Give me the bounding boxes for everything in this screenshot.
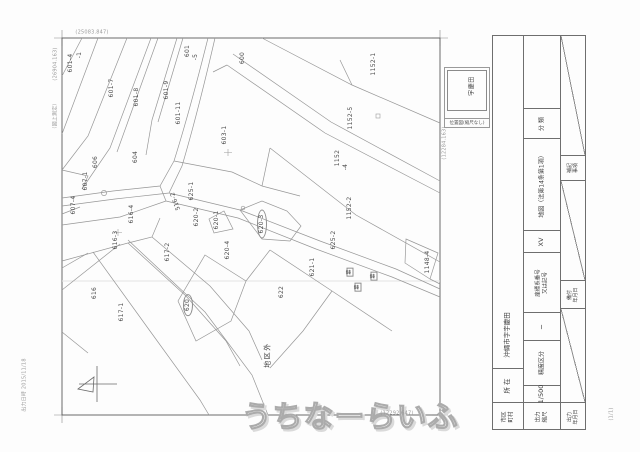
parcel-label: 601-4: [68, 54, 74, 73]
table-cell: 地図（法第14条第1項）: [524, 139, 560, 231]
parcel-label: 606: [93, 156, 99, 168]
parcel-label: 601-8: [134, 88, 140, 107]
table-cell-text: 所 在: [504, 378, 512, 393]
table-cell-text: 補記事項: [567, 163, 579, 173]
table-cell: [561, 36, 585, 156]
table-cell: ─: [524, 313, 560, 341]
parcel-label: 1152-5: [348, 106, 354, 129]
table-cell-text: ─: [538, 324, 546, 328]
table-cell: 出力縮尺: [524, 403, 560, 431]
coordinate-label: (12284.163): [443, 126, 448, 159]
table-cell: 座標系番号又は記号: [524, 253, 560, 313]
survey-marks: [114, 114, 380, 236]
table-cell: 市区町村: [493, 403, 523, 431]
table-cell-text: 分 類: [538, 117, 545, 131]
parcel-label: 625-2: [331, 231, 337, 250]
parcel-label: 620-2: [194, 208, 200, 227]
inset-location-box: 宇慶田 位置図(縮尺なし): [444, 67, 490, 128]
table-cell-text: 出力年月日: [567, 409, 579, 424]
table-cell-text: 備付年月日: [567, 287, 579, 302]
table-cell: XV: [524, 231, 560, 253]
parcel-label: 616-4: [129, 205, 135, 224]
title-block-column: 補記事項備付年月日出力年月日: [560, 35, 586, 430]
parcel-label: -5: [193, 54, 199, 61]
parcel-label: 607-1: [83, 172, 89, 191]
inset-area-name: 宇慶田: [467, 76, 476, 96]
parcel-label: 601-7: [109, 79, 115, 98]
title-block-column: 分 類地図（法第14条第1項）XV座標系番号又は記号─精度区分1/500出力縮尺: [523, 35, 561, 430]
parcel-label: -4: [343, 164, 349, 171]
table-cell: 出力年月日: [561, 403, 585, 431]
parcel-label: 1152: [335, 150, 341, 166]
title-block-column: 沖縄市字宇慶田所 在市区町村: [492, 35, 524, 430]
north-arrow: [78, 366, 117, 402]
table-cell-text: XV: [538, 237, 546, 246]
table-cell-text: 精度区分: [538, 351, 545, 375]
coordinate-label: (26904.163): [54, 47, 59, 80]
table-cell: [493, 36, 523, 301]
parcel-label: 601-11: [176, 101, 182, 124]
table-cell-text: 沖縄市字宇慶田: [504, 312, 512, 358]
table-cell: 1/500: [524, 386, 560, 403]
parcel-label: 603-1: [222, 126, 228, 145]
parcel-label: 617-1: [119, 303, 125, 322]
parcel-label: 601-9: [164, 81, 170, 100]
parcel-label: 620-1: [214, 211, 220, 230]
coordinate-label: (12292.647): [380, 412, 413, 417]
parcel-label: 墓: [371, 271, 378, 280]
watermark: うちなーらいふ うちなーらいふ: [242, 400, 461, 437]
parcel-label: 600: [240, 52, 246, 64]
table-cell: 補記事項: [561, 156, 585, 181]
scanned-cadastral-map-page: うちなーらいふ うちなーらいふ 601-4-1601-7601-8601-960…: [0, 0, 640, 452]
parcel-label: 1148-4: [425, 250, 431, 273]
table-cell: 備付年月日: [561, 281, 585, 309]
parcel-label: 620-4: [225, 241, 231, 260]
table-cell: 沖縄市字宇慶田: [493, 301, 523, 369]
parcel-label: -1: [77, 52, 83, 59]
coordinate-label: (1/1): [610, 408, 615, 421]
table-cell: [561, 181, 585, 281]
watermark-text: うちなーらいふ: [242, 400, 459, 435]
parcel-boundaries: [62, 38, 440, 415]
coordinate-label: (25083.847): [75, 31, 108, 36]
parcel-label: 墓: [355, 282, 362, 291]
parcel-label: 616: [92, 287, 98, 299]
table-cell-text: 座標系番号又は記号: [535, 269, 548, 297]
inset-caption: 位置図(縮尺なし): [445, 118, 489, 126]
parcel-label: 617-2: [165, 243, 171, 262]
table-cell: [561, 309, 585, 403]
district-note-label: 地区外: [265, 342, 272, 368]
parcel-label: 604: [133, 151, 139, 163]
parcel-label: 1152-1: [371, 52, 377, 75]
parcel-label: 620: [183, 294, 193, 316]
table-cell: 精度区分: [524, 341, 560, 386]
parcel-label: 616-3: [113, 231, 119, 250]
table-cell-text: 地図（法第14条第1項）: [538, 152, 545, 217]
coordinate-label: 出力日時 2015/11/18: [23, 358, 28, 411]
table-cell: 所 在: [493, 369, 523, 403]
parcel-label: 622: [279, 286, 285, 298]
parcel-label: 607-4: [71, 196, 77, 215]
parcel-label: 620-3: [257, 210, 267, 239]
table-cell: 分 類: [524, 109, 560, 139]
coordinate-label: （図上測定）: [54, 100, 59, 131]
parcel-label: 621-1: [310, 258, 316, 277]
parcel-label: 625-1: [189, 182, 195, 201]
table-cell: [524, 36, 560, 109]
table-cell-text: 出力縮尺: [535, 411, 548, 422]
map-frame: [62, 38, 440, 415]
table-cell-text: 1/500: [538, 385, 546, 404]
table-cell-text: 市区町村: [501, 411, 514, 422]
parcel-label: 墓: [347, 267, 354, 276]
parcel-label: 601: [185, 45, 191, 57]
parcel-label: 1152-2: [347, 196, 353, 219]
